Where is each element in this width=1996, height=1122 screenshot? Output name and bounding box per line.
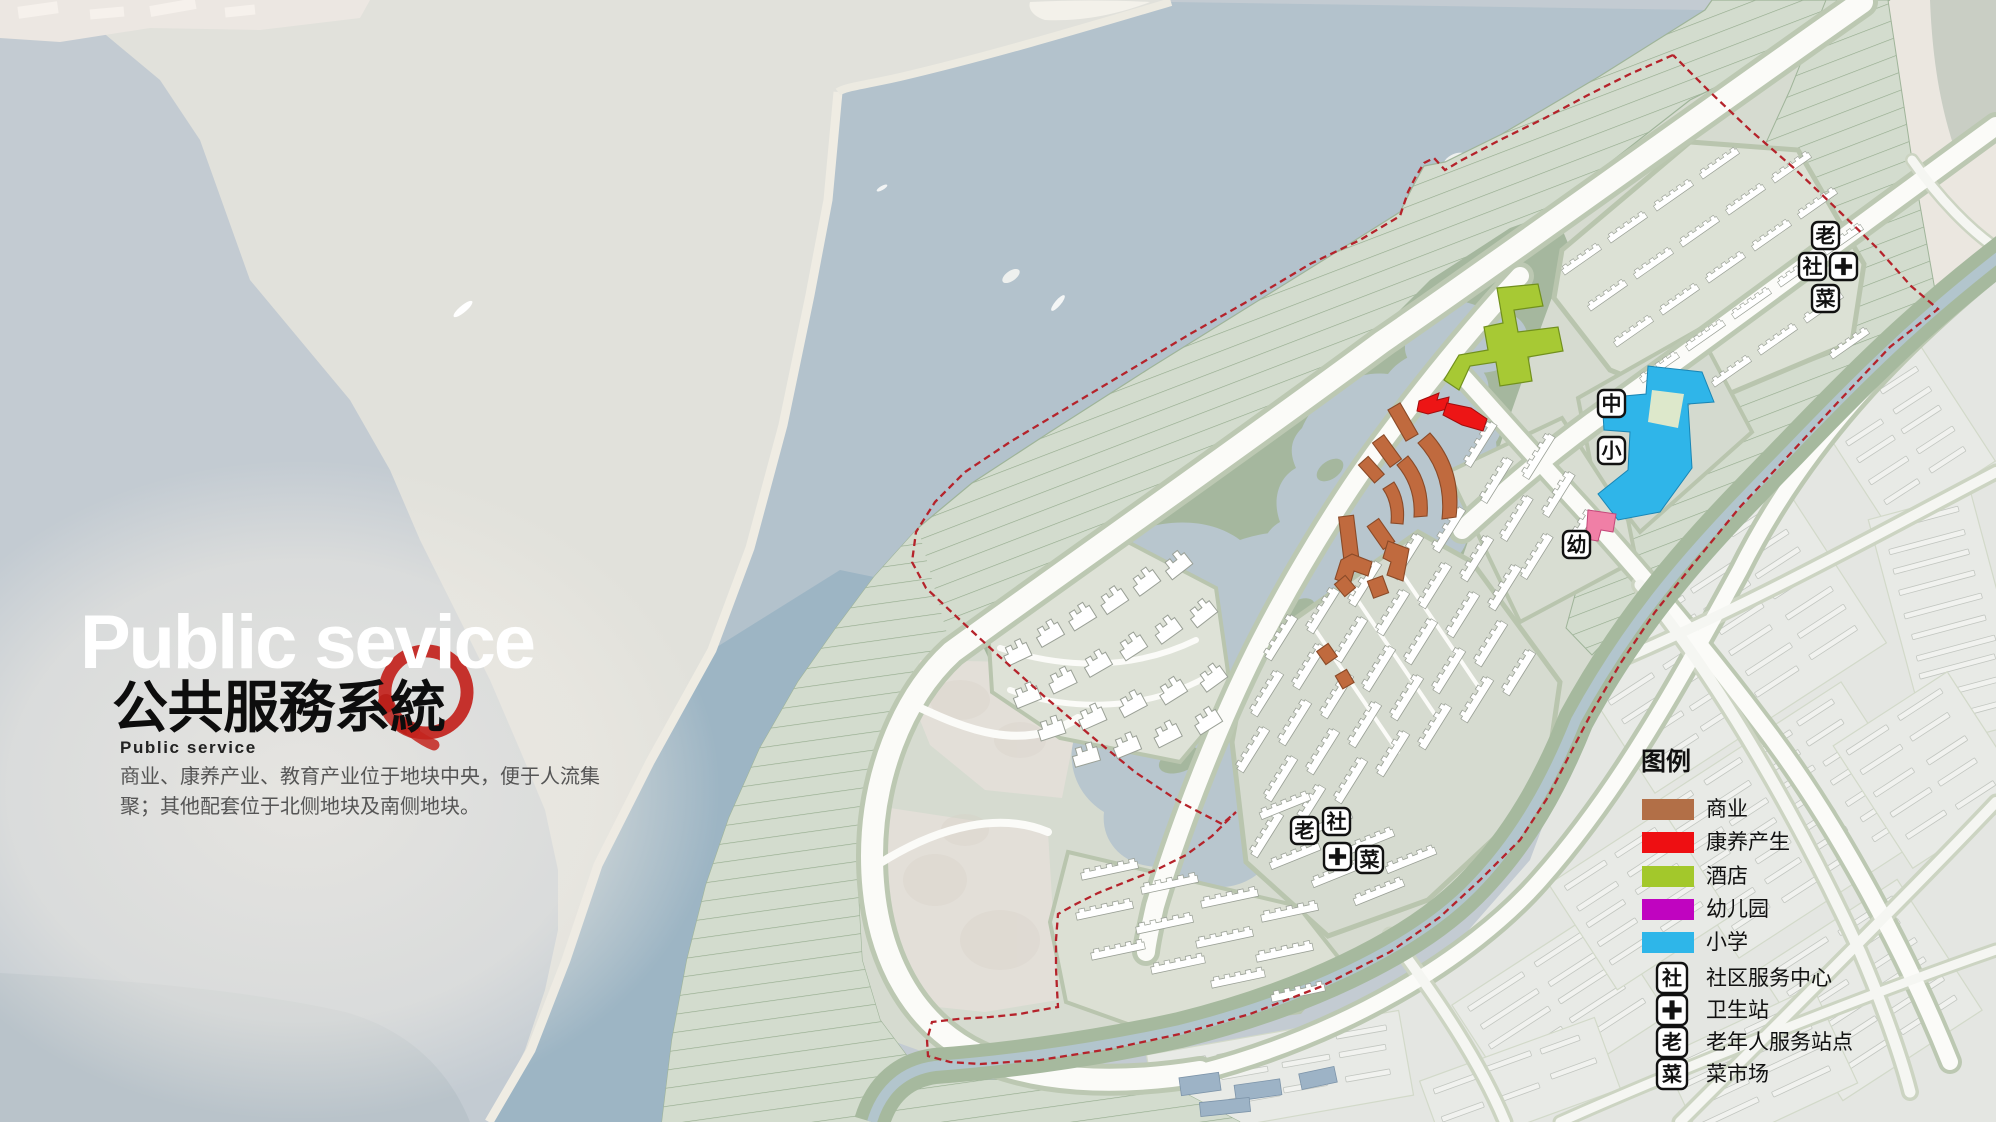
svg-text:菜: 菜 <box>1359 849 1380 872</box>
svg-text:社: 社 <box>1326 810 1347 834</box>
svg-text:菜: 菜 <box>1661 1063 1682 1086</box>
svg-text:酒店: 酒店 <box>1706 865 1748 888</box>
svg-text:商业: 商业 <box>1706 798 1748 821</box>
svg-text:康养产生: 康养产生 <box>1706 831 1790 854</box>
svg-text:社: 社 <box>1802 255 1823 279</box>
svg-text:社: 社 <box>1661 966 1682 990</box>
svg-text:中: 中 <box>1602 392 1622 416</box>
svg-text:幼儿园: 幼儿园 <box>1706 898 1769 921</box>
svg-text:卫生站: 卫生站 <box>1706 999 1769 1022</box>
svg-text:老: 老 <box>1662 1030 1682 1054</box>
svg-text:老: 老 <box>1295 819 1315 843</box>
svg-text:社区服务中心: 社区服务中心 <box>1706 967 1832 990</box>
svg-text:老: 老 <box>1816 224 1836 248</box>
svg-text:小: 小 <box>1602 440 1622 463</box>
svg-text:老年人服务站点: 老年人服务站点 <box>1706 1031 1853 1054</box>
svg-text:商业、康养产业、教育产业位于地块中央，便于人流集: 商业、康养产业、教育产业位于地块中央，便于人流集 <box>120 765 600 788</box>
svg-text:图例: 图例 <box>1641 748 1691 776</box>
svg-text:聚；其他配套位于北侧地块及南侧地块。: 聚；其他配套位于北侧地块及南侧地块。 <box>120 795 480 818</box>
svg-text:Public sevice: Public sevice <box>80 600 536 685</box>
svg-text:Public service: Public service <box>120 738 257 757</box>
svg-text:菜: 菜 <box>1815 288 1836 311</box>
svg-text:小学: 小学 <box>1706 931 1748 954</box>
svg-text:幼: 幼 <box>1567 533 1587 557</box>
svg-text:菜市场: 菜市场 <box>1706 1063 1769 1086</box>
svg-text:公共服務系統: 公共服務系統 <box>112 676 446 739</box>
